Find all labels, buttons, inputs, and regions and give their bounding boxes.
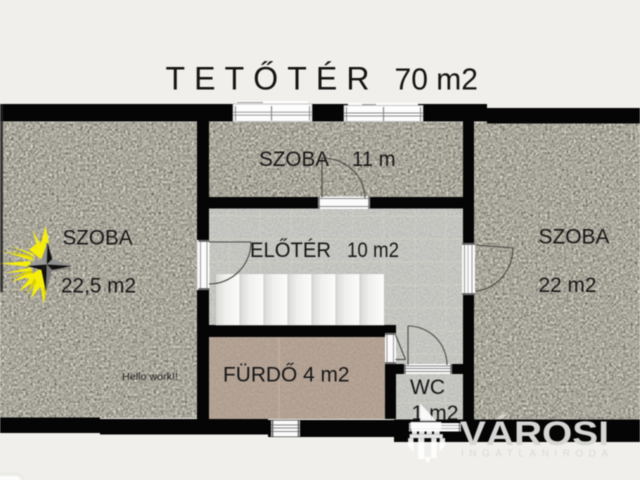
svg-text:70 m2: 70 m2 <box>395 62 479 97</box>
svg-text:VÁROSI: VÁROSI <box>460 415 609 453</box>
svg-text:22,5 m2: 22,5 m2 <box>61 274 136 298</box>
svg-text:ELŐTÉR: ELŐTÉR <box>250 237 331 262</box>
svg-text:10 m2: 10 m2 <box>347 238 399 262</box>
svg-text:WC: WC <box>410 375 445 399</box>
svg-text:11 m: 11 m <box>352 147 396 171</box>
svg-text:22 m2: 22 m2 <box>539 273 597 297</box>
svg-text:SZOBA: SZOBA <box>539 225 611 249</box>
svg-text:Hello work!!: Hello work!! <box>122 371 178 383</box>
svg-text:SZOBA: SZOBA <box>63 226 134 250</box>
svg-text:1 m2: 1 m2 <box>412 401 459 425</box>
svg-text:SZOBA: SZOBA <box>259 147 330 171</box>
svg-text:FÜRDŐ 4 m2: FÜRDŐ 4 m2 <box>223 362 350 387</box>
